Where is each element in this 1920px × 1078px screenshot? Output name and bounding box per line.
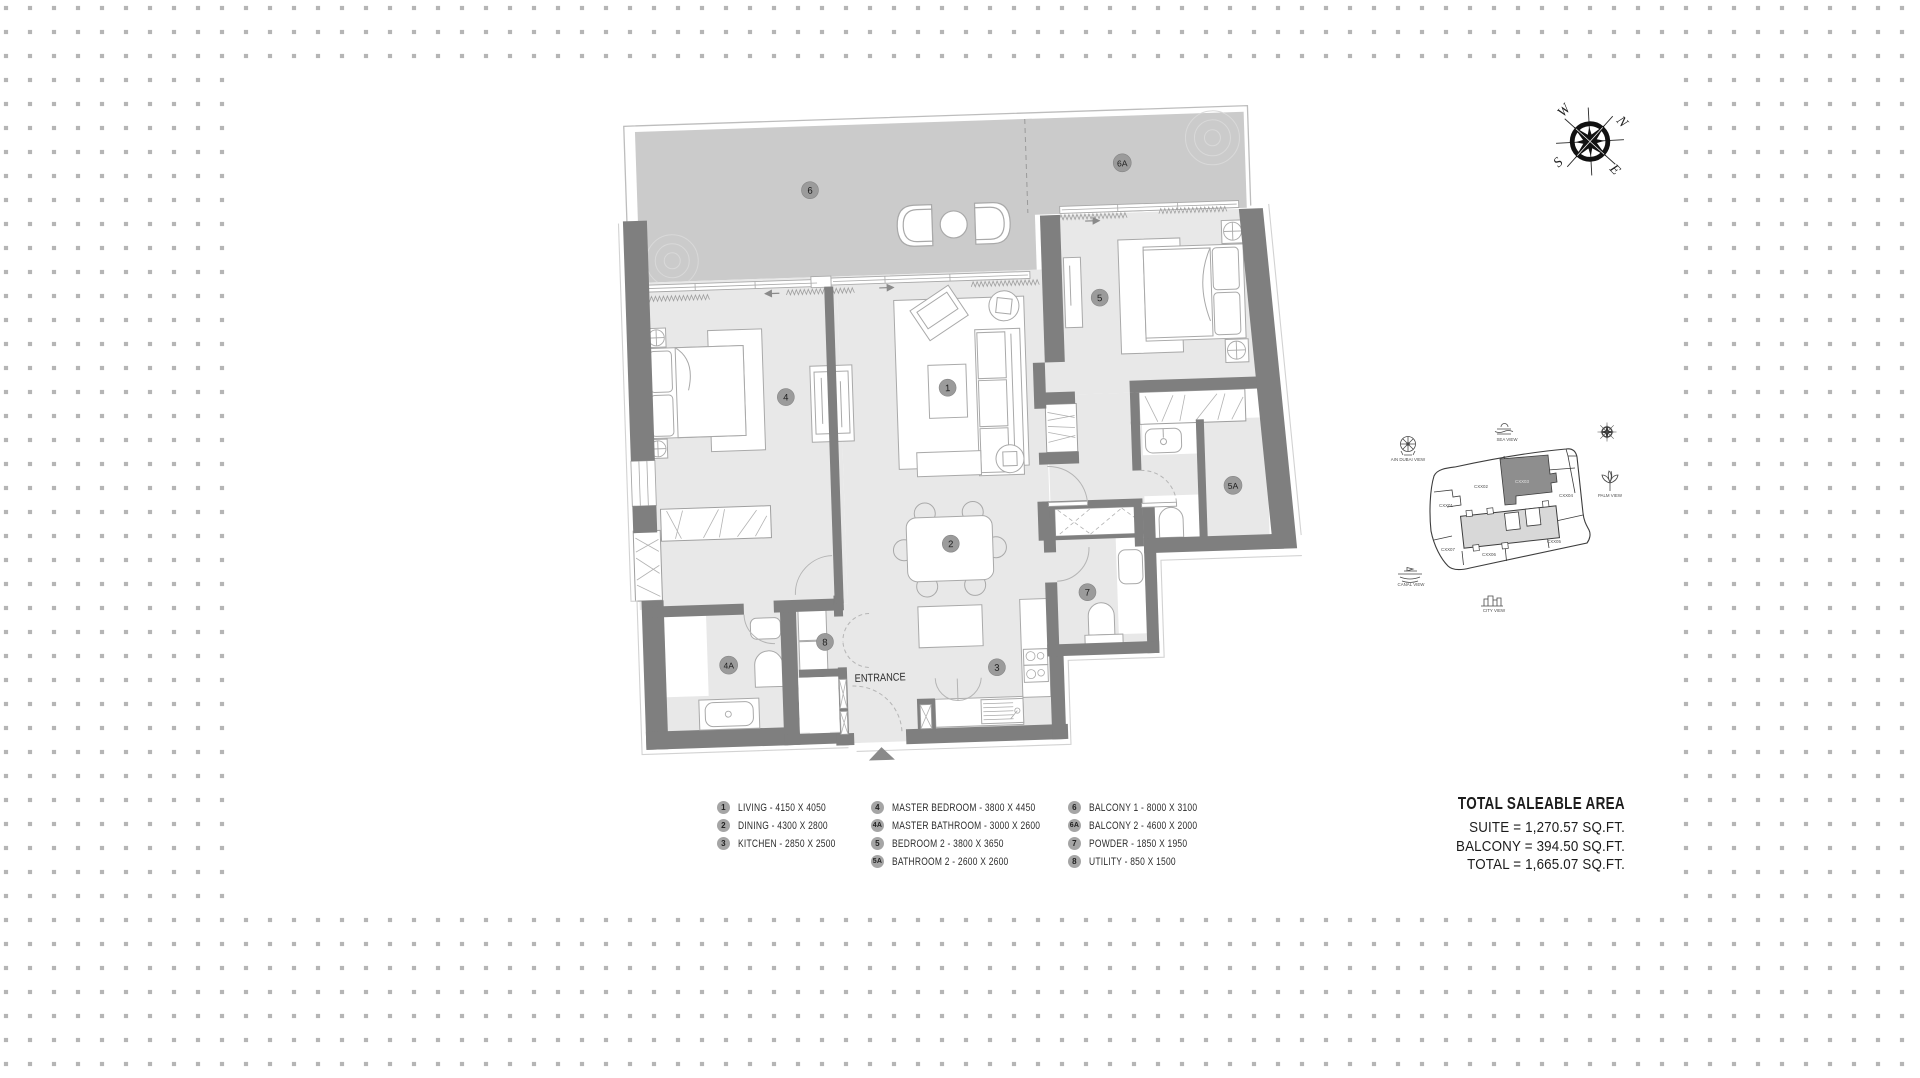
svg-text:6: 6 (807, 186, 813, 197)
svg-text:CXX03: CXX03 (1515, 479, 1529, 484)
svg-text:8: 8 (822, 637, 828, 648)
svg-text:ENTRANCE: ENTRANCE (855, 671, 906, 685)
svg-text:7: 7 (1085, 588, 1091, 599)
svg-text:4A: 4A (723, 660, 734, 670)
svg-text:CXX07: CXX07 (1441, 547, 1455, 552)
svg-text:5: 5 (1097, 293, 1103, 304)
svg-text:4: 4 (783, 393, 789, 404)
svg-text:2: 2 (948, 539, 954, 550)
svg-text:SEA VIEW: SEA VIEW (1497, 437, 1519, 442)
svg-text:AIN DUBAI VIEW: AIN DUBAI VIEW (1391, 457, 1426, 462)
svg-text:CXX05: CXX05 (1547, 539, 1561, 544)
svg-text:1: 1 (945, 383, 951, 394)
svg-text:CANAL VIEW: CANAL VIEW (1398, 582, 1426, 587)
svg-text:CXX02: CXX02 (1474, 484, 1488, 489)
svg-text:6A: 6A (1117, 158, 1128, 168)
svg-text:PALM VIEW: PALM VIEW (1598, 493, 1623, 498)
svg-text:CXX01: CXX01 (1439, 503, 1453, 508)
svg-text:3: 3 (994, 663, 1000, 674)
svg-text:CXX04: CXX04 (1559, 493, 1573, 498)
svg-text:CXX06: CXX06 (1482, 552, 1496, 557)
svg-text:5A: 5A (1228, 481, 1239, 491)
svg-text:CITY VIEW: CITY VIEW (1483, 608, 1506, 613)
